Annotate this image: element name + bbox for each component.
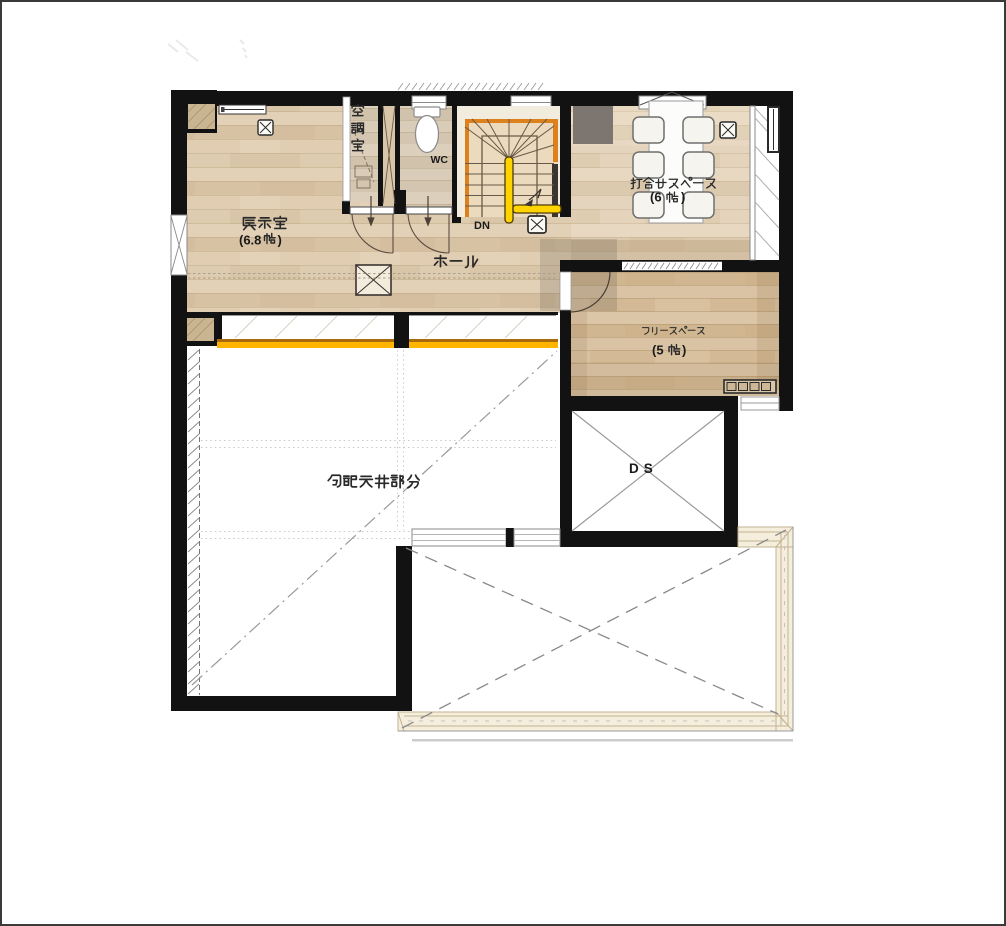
svg-text:(6: (6 — [650, 190, 662, 205]
svg-text:(6.8: (6.8 — [239, 233, 261, 248]
svg-text:): ) — [682, 343, 686, 358]
svg-text:WC: WC — [431, 154, 449, 166]
svg-text:DN: DN — [474, 220, 490, 232]
svg-text:(5: (5 — [652, 343, 664, 358]
svg-text:DS: DS — [629, 461, 658, 476]
svg-text:): ) — [681, 190, 685, 205]
svg-text:): ) — [278, 233, 282, 248]
